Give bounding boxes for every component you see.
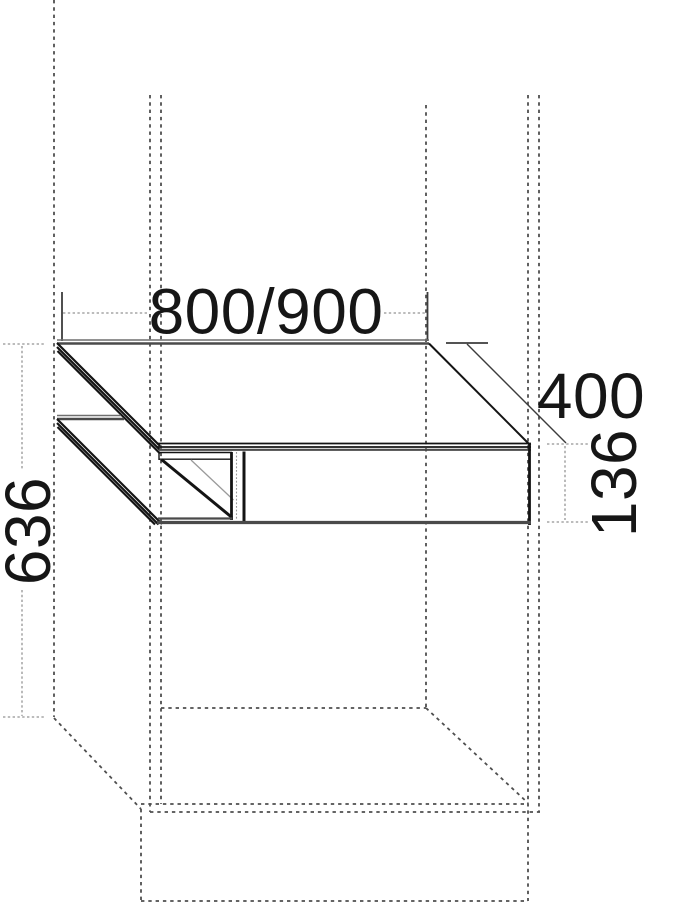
shelf-unit-solid-drawing [57,340,531,525]
dim-front-height-label: 136 [578,429,650,537]
dimension-labels: 800/900 400 136 636 [0,276,650,586]
dim-depth-label: 400 [537,360,645,432]
drawing-svg: 800/900 400 136 636 [0,0,680,908]
niche-diagonal-panel-back-edge [191,460,234,500]
dim-install-height-label: 636 [0,477,64,585]
bottom-panel-left-depth-edge-3 [58,427,156,525]
technical-drawing: 800/900 400 136 636 [0,0,680,908]
top-panel-right-depth-edge [429,344,531,446]
top-panel-left-depth-edge-1 [57,343,160,446]
dim-width-label: 800/900 [149,276,384,348]
dimension-lines [3,292,588,717]
context-left-sideboard-depth-dash [54,718,141,809]
context-right-sideboard-depth-dash [426,708,528,803]
